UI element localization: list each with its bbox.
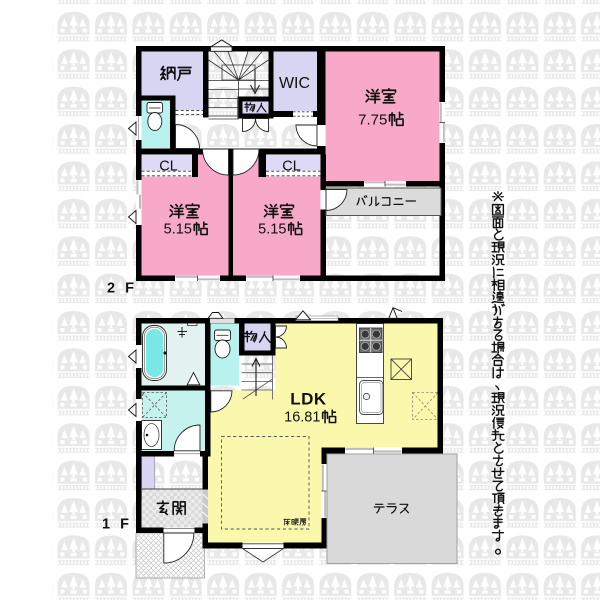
svg-text:WIC: WIC xyxy=(279,75,310,92)
svg-text:1 F: 1 F xyxy=(102,517,132,533)
svg-text:LDK: LDK xyxy=(290,390,327,409)
svg-text:CL: CL xyxy=(159,159,178,175)
svg-text:7.75: 7.75 xyxy=(358,111,387,128)
svg-text:5.15: 5.15 xyxy=(164,222,192,238)
svg-text:2 F: 2 F xyxy=(107,281,137,297)
svg-text:5.15: 5.15 xyxy=(258,222,286,238)
svg-text:CL: CL xyxy=(282,159,301,175)
svg-text:16.81: 16.81 xyxy=(284,410,320,426)
